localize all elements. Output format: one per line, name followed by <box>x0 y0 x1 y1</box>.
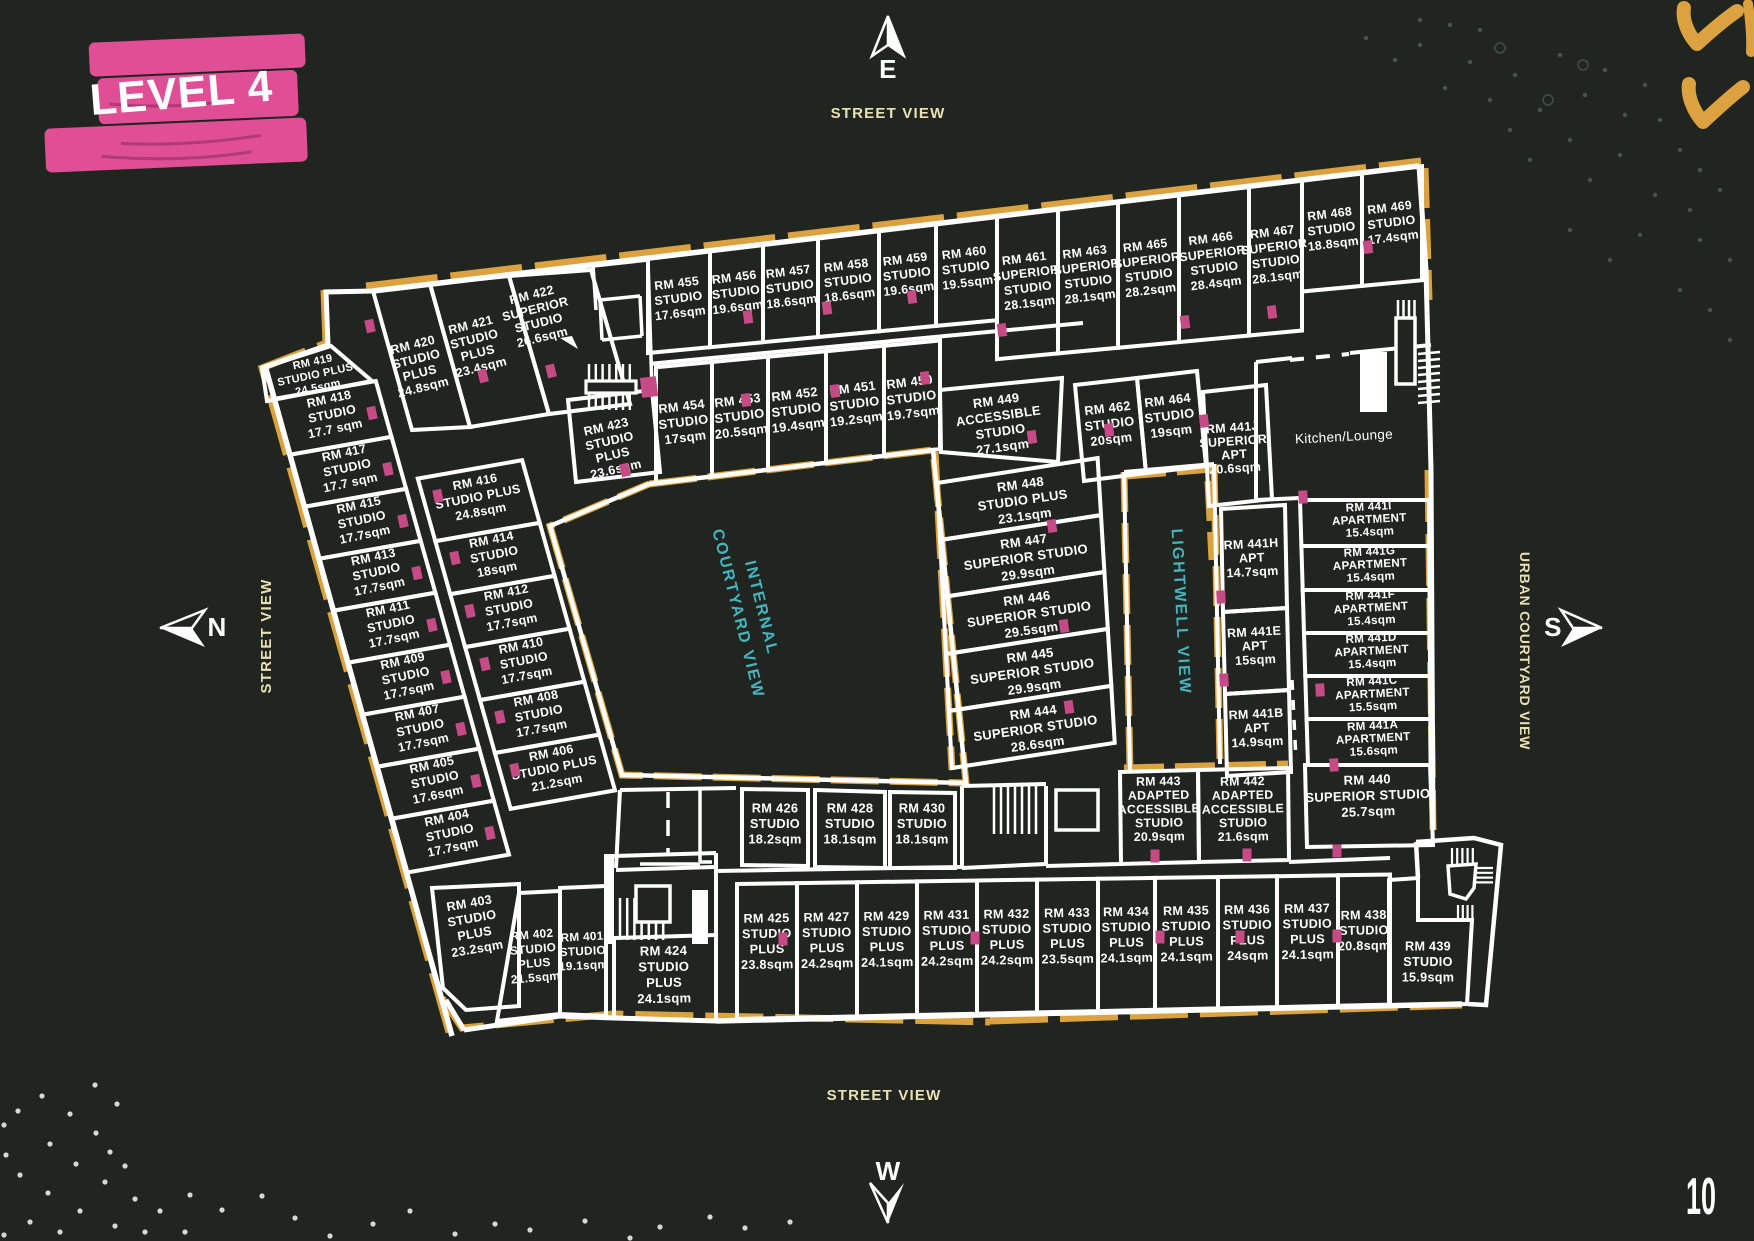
svg-text:RM 439STUDIO15.9sqm: RM 439STUDIO15.9sqm <box>1402 940 1455 985</box>
svg-text:RM 469STUDIO17.4sqm: RM 469STUDIO17.4sqm <box>1363 197 1419 247</box>
svg-text:RM 460STUDIO19.5sqm: RM 460STUDIO19.5sqm <box>938 243 994 293</box>
svg-text:RM 401STUDIO19.1sqm: RM 401STUDIO19.1sqm <box>557 928 609 973</box>
svg-text:RM 455STUDIO17.6sqm: RM 455STUDIO17.6sqm <box>650 273 706 323</box>
svg-text:S: S <box>1544 612 1562 642</box>
svg-text:STREET VIEW: STREET VIEW <box>258 579 275 694</box>
svg-text:RM 454STUDIO17sqm: RM 454STUDIO17sqm <box>656 396 711 448</box>
svg-text:RM 438STUDIO20.8sqm: RM 438STUDIO20.8sqm <box>1337 908 1390 954</box>
svg-text:RM 430STUDIO18.1sqm: RM 430STUDIO18.1sqm <box>895 800 948 846</box>
svg-text:URBAN COURTYARD VIEW: URBAN COURTYARD VIEW <box>1517 552 1533 750</box>
svg-text:N: N <box>207 612 226 642</box>
svg-text:RM 458STUDIO18.6sqm: RM 458STUDIO18.6sqm <box>820 255 876 305</box>
svg-text:RM 428STUDIO18.1sqm: RM 428STUDIO18.1sqm <box>823 800 876 846</box>
svg-text:RM 457STUDIO18.6sqm: RM 457STUDIO18.6sqm <box>762 262 818 312</box>
svg-text:RM 464STUDIO19sqm: RM 464STUDIO19sqm <box>1142 390 1197 442</box>
svg-text:RM 450STUDIO19.7sqm: RM 450STUDIO19.7sqm <box>882 371 941 423</box>
svg-text:RM 452STUDIO19.4sqm: RM 452STUDIO19.4sqm <box>767 383 826 435</box>
svg-text:STREET VIEW: STREET VIEW <box>831 105 946 122</box>
svg-text:E: E <box>879 54 897 84</box>
svg-text:RM 426STUDIO18.2sqm: RM 426STUDIO18.2sqm <box>748 800 801 846</box>
svg-text:W: W <box>876 1156 901 1186</box>
svg-text:STREET VIEW: STREET VIEW <box>827 1087 942 1104</box>
svg-text:RM 468STUDIO18.8sqm: RM 468STUDIO18.8sqm <box>1303 204 1359 254</box>
svg-text:10: 10 <box>1686 1168 1716 1226</box>
svg-text:RM 456STUDIO19.6sqm: RM 456STUDIO19.6sqm <box>708 267 764 317</box>
svg-text:RM 453STUDIO20.5sqm: RM 453STUDIO20.5sqm <box>710 390 769 442</box>
